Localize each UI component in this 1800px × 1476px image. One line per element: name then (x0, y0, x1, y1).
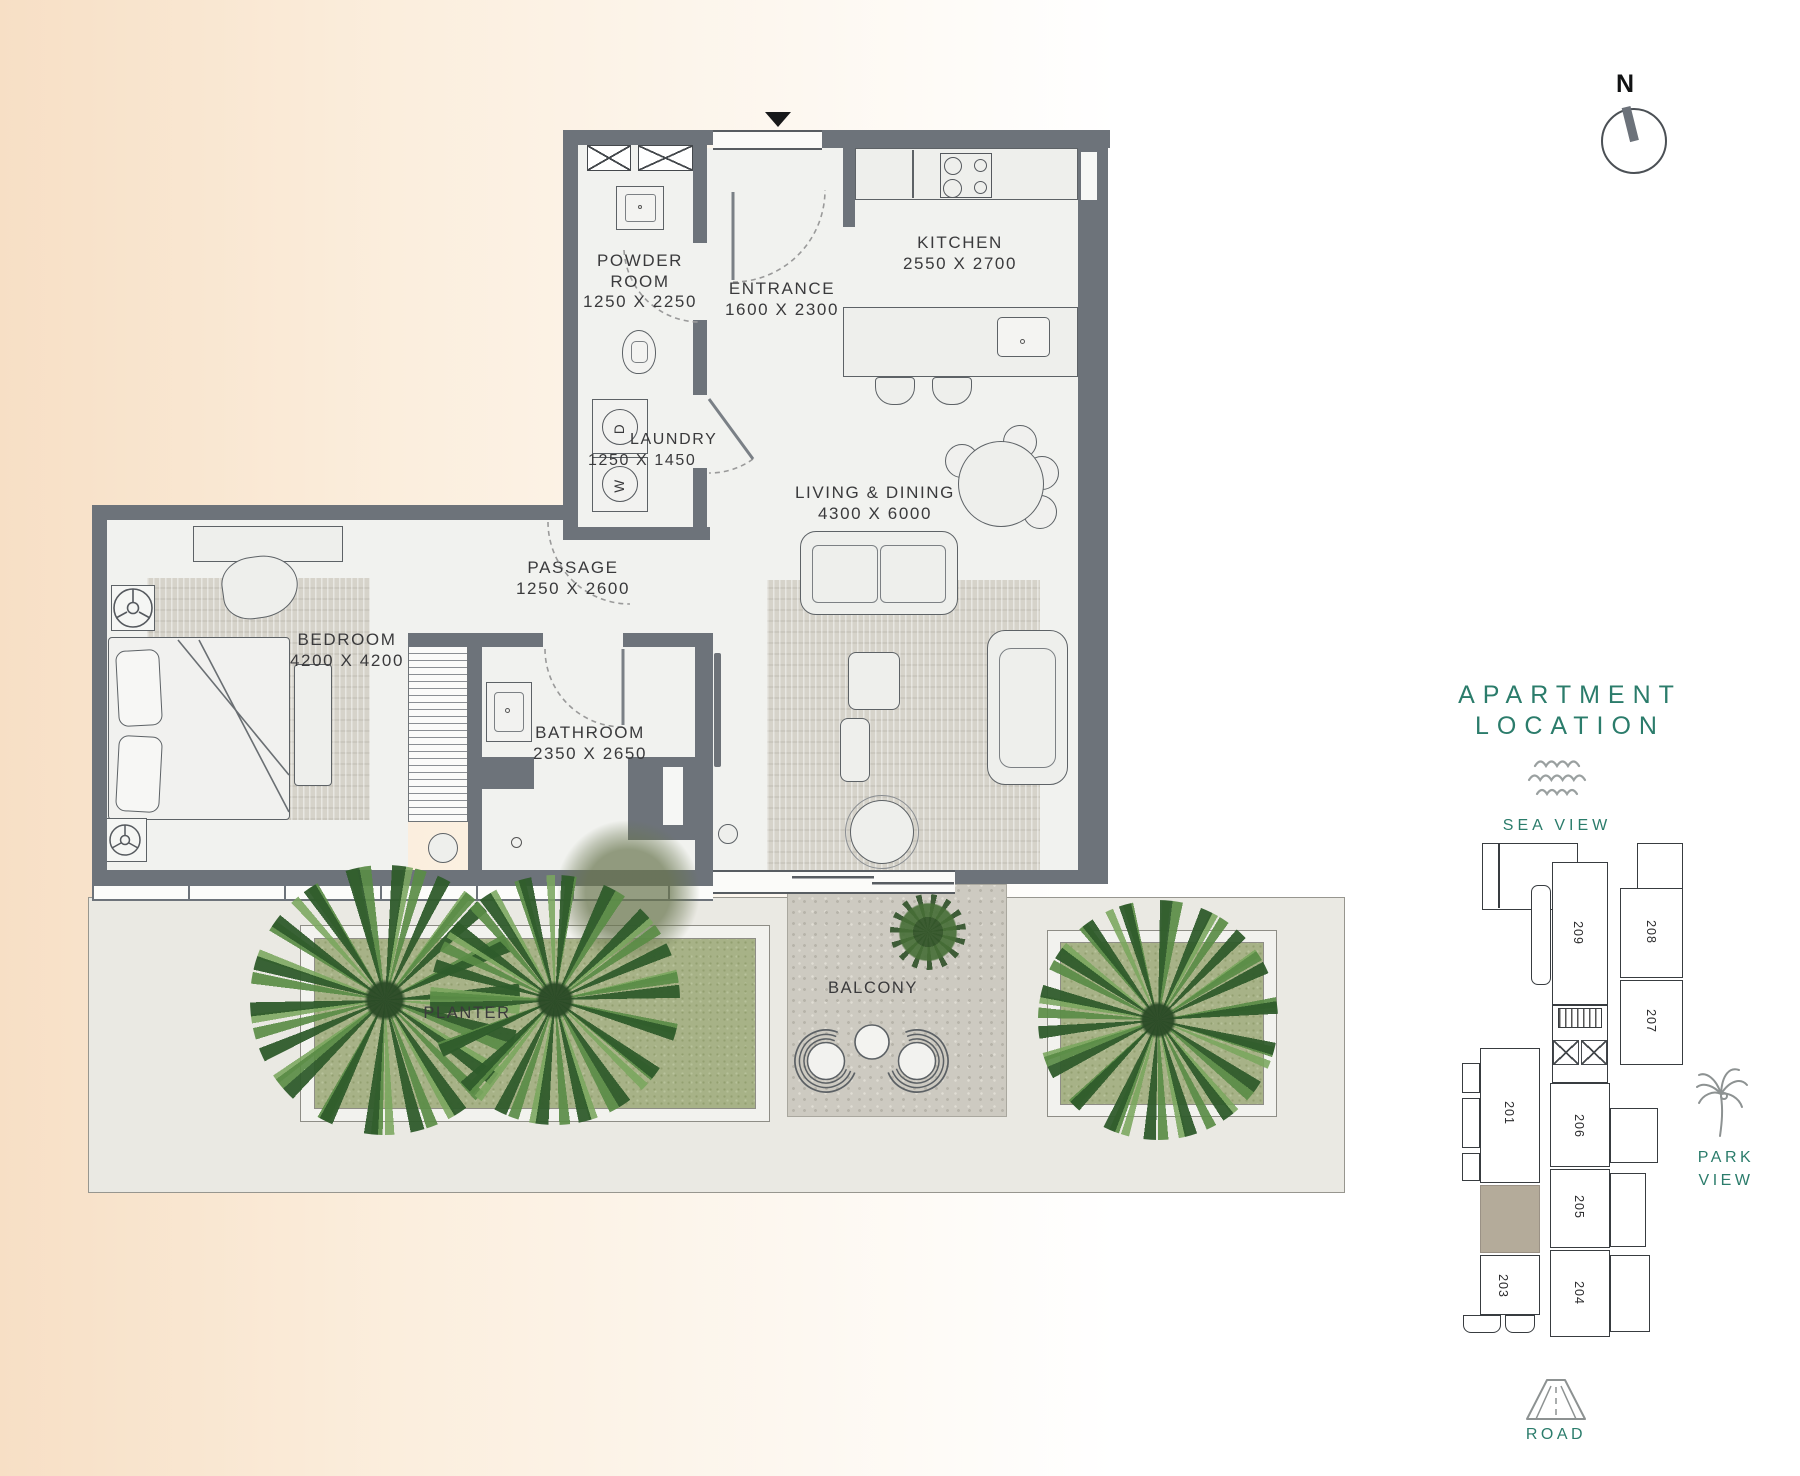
wall-left-exterior (92, 520, 107, 884)
room-name-line: ENTRANCE (697, 279, 867, 300)
pillow-2 (115, 735, 163, 813)
stove-burner-3 (943, 179, 962, 198)
sea-view-label: SEA VIEW (1462, 816, 1652, 837)
keyplan-unit-203 (1480, 1255, 1540, 1315)
swivel-chair-back (845, 795, 919, 869)
floorplan-page: { "compass": { "north_label": "N" }, "ro… (0, 0, 1800, 1476)
wall-powder-right (693, 145, 707, 540)
location-title-line1: APARTMENT (1400, 680, 1740, 711)
room-name-line: KITCHEN (875, 233, 1045, 254)
wall-powder-left (563, 145, 578, 540)
keyplan-tab-203b (1505, 1315, 1535, 1333)
room-dims: 4200 X 4200 (262, 651, 432, 672)
keyplan-right-protrusion-3 (1610, 1255, 1650, 1332)
bedroom-stool (428, 833, 458, 863)
shower-drain (511, 837, 522, 848)
balcony-label: BALCONY (788, 978, 958, 999)
keyplan-balcony-209 (1531, 885, 1551, 985)
vent-shaft-1 (587, 145, 631, 171)
entrance-label: ENTRANCE 1600 X 2300 (697, 279, 867, 320)
wall-bathroom-living-divider (695, 633, 713, 870)
wall-laundry-bottom (563, 527, 710, 540)
coffee-table-1 (848, 652, 900, 710)
right-wall-niche (1081, 152, 1097, 200)
room-dims: 1250 X 2600 (488, 579, 658, 600)
unit-label-209: 209 (1571, 918, 1585, 948)
park-view-line1: PARK (1686, 1146, 1766, 1169)
keyplan-top-right-piece (1637, 843, 1683, 890)
room-name-line: BATHROOM (505, 723, 675, 744)
unit-label-204: 204 (1572, 1278, 1586, 1308)
unit-label-206: 206 (1572, 1111, 1586, 1141)
stove-burner-1 (944, 157, 962, 175)
room-dims: 2350 X 2650 (505, 744, 675, 765)
powder-toilet-seat (631, 341, 648, 363)
keyplan-stairs (1558, 1008, 1602, 1028)
kitchen-label: KITCHEN 2550 X 2700 (875, 233, 1045, 274)
palm-view-icon (1694, 1062, 1750, 1138)
location-title-line2: LOCATION (1400, 711, 1740, 742)
keyplan-right-protrusion-1 (1610, 1108, 1658, 1163)
room-name-line: LAUNDRY (630, 430, 738, 451)
room-name-line: POWDER (555, 251, 725, 272)
fridge-divider (912, 150, 914, 198)
bathroom-duct-niche (663, 767, 683, 825)
island-faucet-dot (1020, 339, 1025, 344)
wall-top-powder (563, 130, 713, 145)
bathroom-label: BATHROOM 2350 X 2650 (505, 723, 675, 764)
powder-basin-drain (638, 205, 642, 209)
coffee-table-2 (840, 718, 870, 782)
keyplan-top-divider (1498, 844, 1500, 908)
room-dims: 2550 X 2700 (875, 254, 1045, 275)
compass-north-label: N (1590, 74, 1660, 95)
tv-panel (714, 653, 721, 767)
stove-burner-2 (974, 159, 987, 172)
keyplan-balcony-201c (1462, 1153, 1480, 1181)
keyplan-balcony-201a (1462, 1063, 1480, 1093)
island-sink (997, 317, 1050, 357)
keyplan-lift-2 (1581, 1040, 1607, 1065)
wall-kitchen-left-return (843, 148, 855, 227)
location-title: APARTMENT LOCATION (1400, 680, 1740, 742)
unit-label-201: 201 (1502, 1098, 1516, 1128)
entrance-threshold (713, 130, 822, 150)
wardrobe-strip (408, 645, 468, 822)
room-name-line: PASSAGE (488, 558, 658, 579)
wall-bathroom-left (468, 647, 482, 870)
keyplan-right-protrusion-2 (1610, 1173, 1646, 1247)
washer-letter: W (610, 476, 631, 496)
sofa-cushion-1 (812, 545, 878, 603)
balcony-bush (890, 894, 966, 970)
vent-shaft-2 (638, 145, 693, 171)
keyplan-balcony-201b (1462, 1098, 1480, 1148)
keyplan-tab-203a (1463, 1315, 1501, 1333)
bathroom-sink-drain (505, 708, 510, 713)
fan-coil-box-2 (103, 818, 147, 862)
unit-label-207: 207 (1644, 1006, 1658, 1036)
stove-burner-4 (974, 181, 987, 194)
unit-label-203: 203 (1496, 1271, 1510, 1301)
unit-label-208: 208 (1644, 917, 1658, 947)
room-dims: 1600 X 2300 (697, 300, 867, 321)
unit-label-205: 205 (1572, 1192, 1586, 1222)
wall-top-kitchen (822, 130, 1110, 148)
road-label: ROAD (1516, 1425, 1596, 1446)
park-view-line2: VIEW (1686, 1169, 1766, 1192)
wall-bottom-right (955, 870, 1108, 884)
sofa-cushion-2 (880, 545, 946, 603)
keyplan-highlighted-unit (1480, 1185, 1540, 1253)
balcony-sliding-door (787, 870, 955, 894)
wall-bedroom-top (92, 505, 578, 520)
living-window-band (713, 870, 787, 894)
armchair-cushion (999, 648, 1056, 768)
fan-coil-box-1 (111, 585, 155, 631)
room-dims: 4300 X 6000 (790, 504, 960, 525)
room-name-line: BEDROOM (262, 630, 432, 651)
sea-waves-icon (1523, 758, 1591, 806)
room-dims: 1250 X 1450 (588, 451, 738, 472)
pillow-1 (115, 649, 163, 727)
entrance-direction-marker (765, 112, 791, 127)
laundry-label: LAUNDRY 1250 X 1450 (578, 430, 738, 471)
park-view-label: PARK VIEW (1686, 1146, 1766, 1192)
bedside-bench (294, 664, 332, 786)
road-icon (1524, 1377, 1588, 1421)
keyplan-lift-1 (1553, 1040, 1579, 1065)
dining-table (958, 441, 1044, 527)
bedroom-label: BEDROOM 4200 X 4200 (262, 630, 432, 671)
floor-lamp (718, 824, 738, 844)
wall-right-exterior (1078, 130, 1108, 884)
living-dining-label: LIVING & DINING 4300 X 6000 (790, 483, 960, 524)
planter-label: PLANTER (382, 1003, 552, 1024)
room-name-line: LIVING & DINING (790, 483, 960, 504)
passage-label: PASSAGE 1250 X 2600 (488, 558, 658, 599)
